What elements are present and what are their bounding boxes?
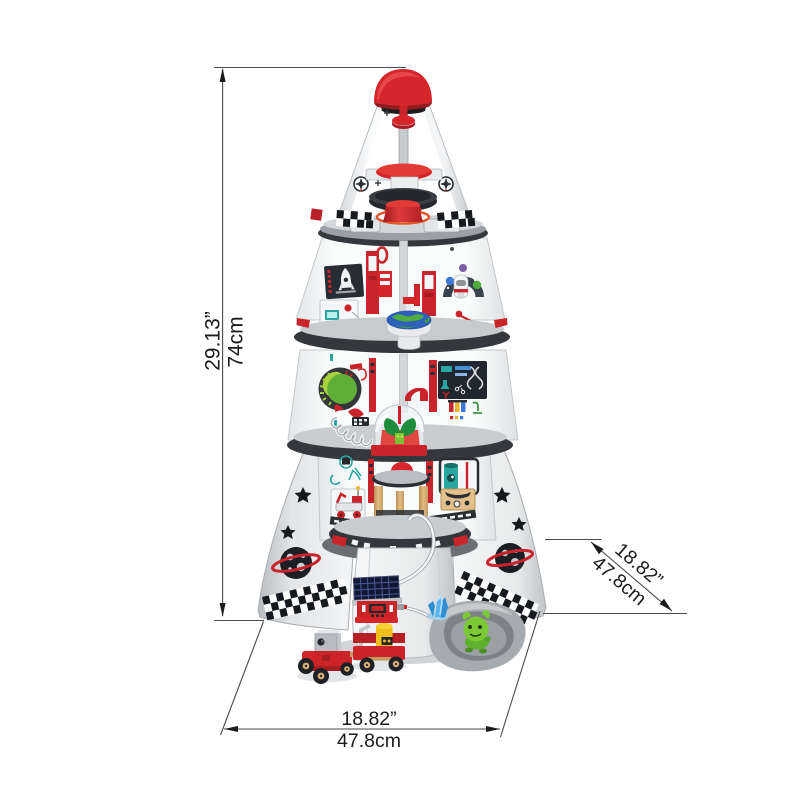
svg-text:74cm: 74cm [225, 316, 248, 367]
svg-text:29.13”: 29.13” [202, 311, 225, 371]
svg-text:47.8cm: 47.8cm [337, 730, 401, 752]
svg-text:18.82”: 18.82” [341, 708, 396, 730]
